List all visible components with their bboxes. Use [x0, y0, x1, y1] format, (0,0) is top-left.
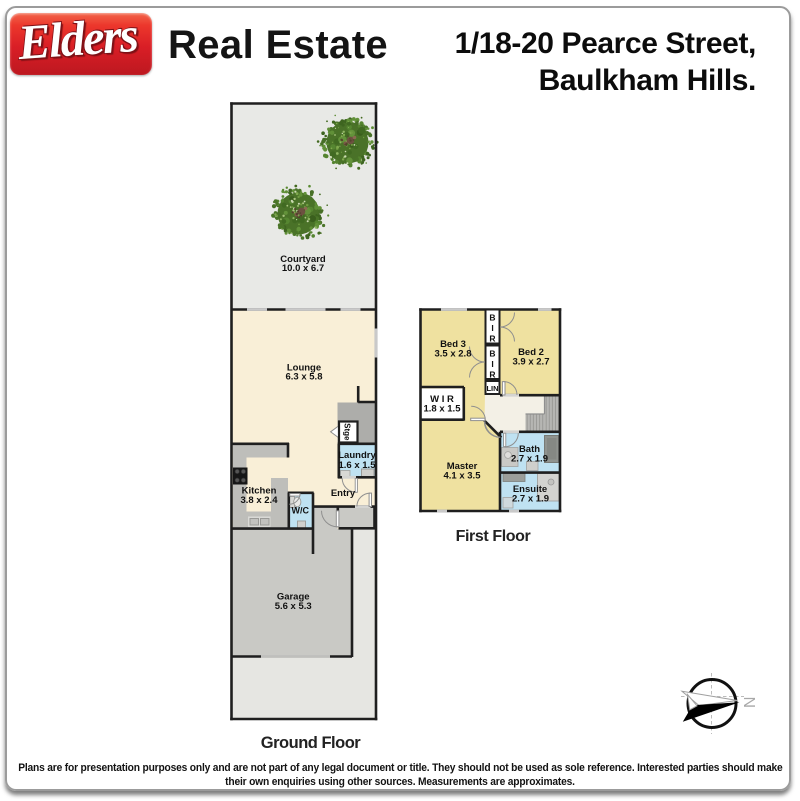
svg-text:5.6 x 5.3: 5.6 x 5.3 — [275, 601, 312, 612]
svg-text:Stge: Stge — [342, 423, 351, 441]
svg-text:R: R — [489, 334, 495, 344]
svg-text:W/C: W/C — [292, 506, 310, 516]
svg-text:I: I — [491, 359, 493, 369]
svg-text:3.8 x 2.4: 3.8 x 2.4 — [241, 495, 279, 506]
svg-text:2.7 x 1.9: 2.7 x 1.9 — [512, 493, 549, 504]
svg-text:3.5 x 2.8: 3.5 x 2.8 — [435, 348, 472, 359]
svg-text:R: R — [489, 370, 495, 380]
svg-text:Entry: Entry — [331, 488, 356, 499]
svg-text:4.1 x 3.5: 4.1 x 3.5 — [444, 470, 482, 481]
svg-text:I: I — [491, 323, 493, 333]
svg-text:2.7 x 1.9: 2.7 x 1.9 — [511, 453, 548, 464]
svg-text:B: B — [489, 313, 495, 323]
svg-text:10.0 x 6.7: 10.0 x 6.7 — [282, 263, 324, 274]
svg-text:N: N — [740, 697, 757, 709]
svg-text:1.8 x 1.5: 1.8 x 1.5 — [424, 403, 462, 414]
svg-text:B: B — [489, 349, 495, 359]
svg-text:LIN: LIN — [486, 384, 498, 393]
svg-text:6.3 x 5.8: 6.3 x 5.8 — [286, 372, 323, 383]
svg-text:1.6 x 1.5: 1.6 x 1.5 — [339, 460, 377, 471]
svg-text:3.9 x 2.7: 3.9 x 2.7 — [513, 356, 550, 367]
